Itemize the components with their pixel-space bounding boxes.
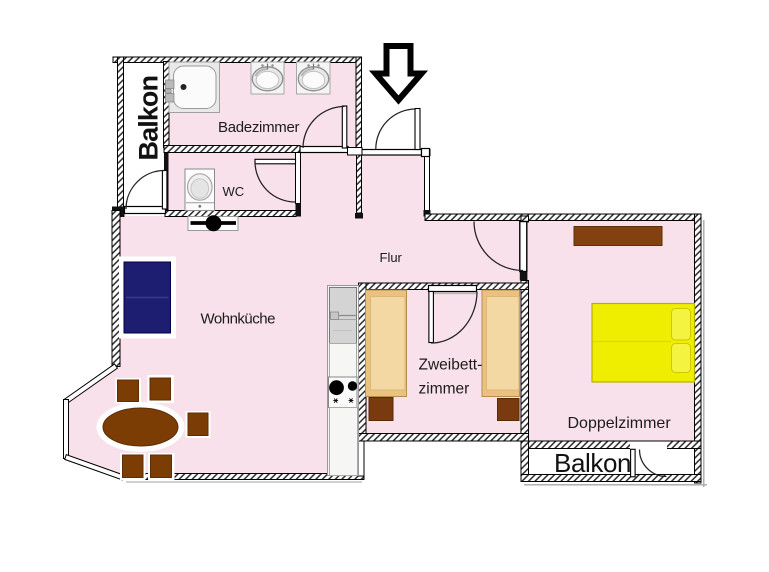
svg-text:Doppelzimmer: Doppelzimmer: [568, 415, 672, 432]
svg-text:Flur: Flur: [380, 250, 403, 265]
svg-text:Balkon: Balkon: [134, 76, 164, 161]
svg-text:Balkon: Balkon: [554, 448, 631, 478]
svg-text:Badezimmer: Badezimmer: [218, 119, 299, 136]
svg-text:Wohnküche: Wohnküche: [201, 311, 276, 328]
svg-text:Zweibett-: Zweibett-: [419, 357, 483, 374]
svg-text:WC: WC: [223, 184, 245, 199]
svg-text:zimmer: zimmer: [419, 381, 470, 398]
